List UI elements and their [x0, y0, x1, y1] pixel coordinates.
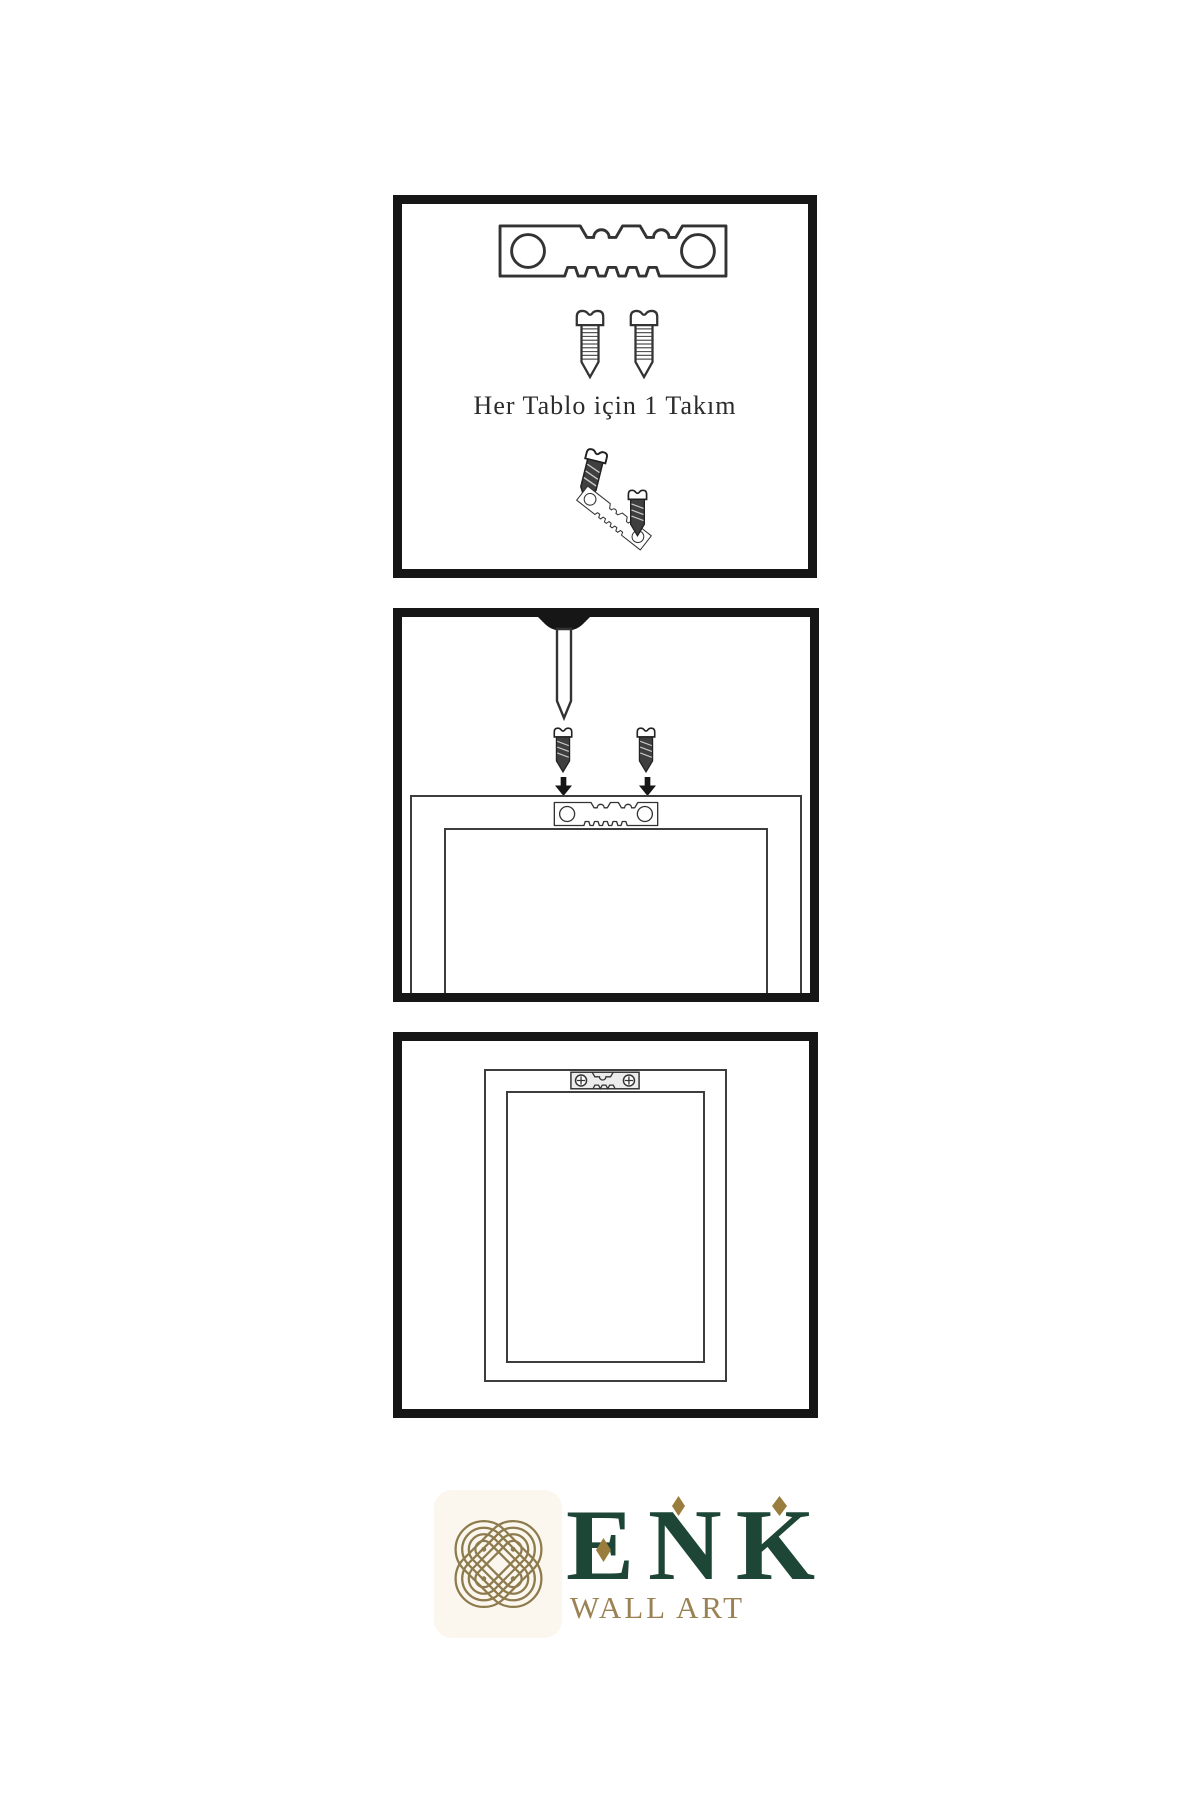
screw-icon — [573, 306, 607, 382]
knot-emblem — [434, 1490, 562, 1638]
kit-caption: Her Tablo için 1 Takım — [402, 389, 808, 423]
mounted-sawtooth-hanger-icon — [570, 1071, 640, 1090]
sawtooth-hanger-icon — [494, 223, 732, 279]
panel-hardware-kit: Her Tablo için 1 Takım — [393, 195, 817, 578]
brand-tagline: WALL ART — [570, 1590, 745, 1626]
screw-icon — [551, 726, 575, 774]
panel-mounting-diagram — [393, 608, 819, 1002]
frame-back-inner-outline — [444, 828, 768, 993]
arrow-down-icon — [639, 777, 656, 796]
panel-hanging-result — [393, 1032, 818, 1418]
arrow-down-icon — [555, 777, 572, 796]
screw-icon — [634, 726, 658, 774]
screw-icon — [627, 306, 661, 382]
sawtooth-hanger-icon — [553, 801, 659, 827]
brand-logo: ENK WALL ART — [420, 1482, 820, 1662]
screws-into-hanger-icon — [576, 448, 668, 553]
knot-icon — [442, 1498, 555, 1630]
frame-front-inner-outline — [506, 1091, 705, 1363]
instruction-sheet: Her Tablo için 1 Takım — [0, 0, 1200, 1800]
wall-nail-icon — [538, 617, 590, 721]
